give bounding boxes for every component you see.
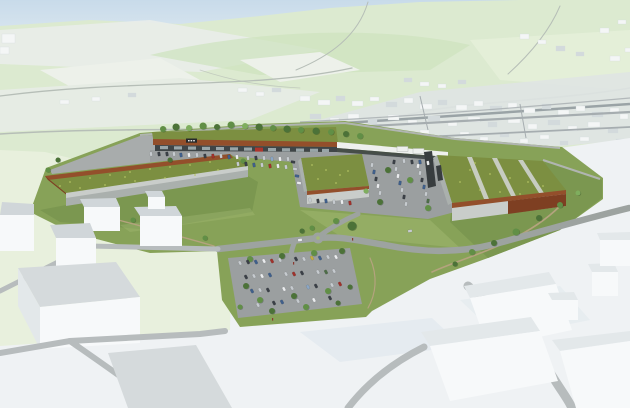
town-building-block	[458, 80, 466, 84]
car	[404, 202, 407, 207]
town-building-block	[488, 122, 497, 127]
cube-roof	[50, 223, 96, 238]
car	[424, 192, 427, 197]
town-building-block	[548, 120, 560, 125]
car	[291, 160, 296, 163]
car	[332, 200, 335, 205]
roof-vegetation-dot	[189, 164, 191, 166]
glass-unit	[268, 148, 276, 151]
glass-unit	[244, 148, 252, 151]
car	[297, 181, 302, 184]
roof-vegetation-dot	[104, 184, 106, 186]
town-building-block	[352, 101, 363, 106]
roof-vegetation-dot	[79, 187, 81, 189]
glass-unit	[202, 147, 210, 150]
town-building-block	[456, 105, 467, 110]
town-building-block	[128, 93, 136, 97]
car	[348, 201, 351, 206]
glass-unit	[282, 148, 290, 151]
pedestrian-figure	[272, 318, 273, 321]
car	[246, 156, 249, 161]
roof-vegetation-dot	[209, 161, 211, 163]
roof-vegetation-dot	[217, 169, 219, 171]
town-building-block	[620, 114, 628, 119]
town-building-block	[520, 34, 529, 39]
car	[165, 152, 168, 157]
roof-vegetation-dot	[149, 168, 151, 170]
town-building-block	[238, 88, 247, 92]
town-building-block	[576, 52, 584, 56]
car	[268, 164, 271, 169]
car	[227, 155, 230, 160]
glass-unit	[310, 149, 318, 152]
roof-vegetation-dot	[59, 185, 61, 187]
car	[408, 229, 413, 232]
pedestrian-figure	[293, 262, 294, 265]
town-building-block	[92, 97, 100, 101]
car	[316, 199, 319, 204]
glass-unit	[188, 147, 196, 150]
car	[211, 154, 214, 159]
town-building-block	[524, 108, 535, 113]
cube-roof	[145, 191, 165, 197]
car	[262, 156, 265, 161]
car	[398, 181, 401, 186]
cube-front	[148, 197, 165, 209]
town-building-block	[428, 116, 440, 121]
roof-vegetation-dot	[169, 166, 171, 168]
car	[374, 177, 377, 182]
car	[157, 152, 160, 157]
car	[420, 178, 423, 183]
box-front	[552, 300, 578, 320]
aerial-render	[0, 0, 630, 408]
car	[372, 170, 375, 175]
town-building-block	[438, 100, 447, 105]
sign-mark	[188, 140, 190, 141]
glass-unit	[216, 147, 224, 150]
town-building-block	[420, 82, 429, 86]
car	[426, 199, 429, 204]
town-building-block	[588, 122, 600, 127]
car	[149, 152, 152, 157]
town-building-block	[576, 106, 585, 111]
car	[308, 198, 311, 203]
roof-vegetation-dot	[489, 173, 491, 175]
car	[340, 200, 343, 205]
cart-shelter-2	[413, 149, 424, 154]
box-roof	[597, 232, 630, 240]
fascia-sign	[186, 139, 197, 143]
glass-unit	[174, 146, 182, 149]
town-building-block	[300, 96, 310, 101]
town-building-block	[370, 97, 379, 101]
cube-front	[140, 216, 182, 246]
car	[278, 157, 281, 162]
town-building-block	[2, 34, 15, 43]
town-building-block	[0, 47, 9, 54]
roof-vegetation-dot	[317, 178, 319, 180]
cube-roof	[80, 198, 120, 207]
car	[260, 163, 263, 168]
car	[378, 191, 381, 196]
town-building-block	[474, 101, 483, 106]
car	[195, 153, 198, 158]
roof-vegetation-dot	[527, 181, 529, 183]
town-building-block	[610, 56, 620, 61]
middle-hall-green-roof	[301, 154, 369, 191]
red-shop-unit	[255, 148, 263, 152]
roof-vegetation-dot	[519, 193, 521, 195]
town-building-block	[336, 96, 345, 101]
car	[402, 159, 405, 164]
car	[394, 167, 397, 172]
roof-vegetation-dot	[69, 181, 71, 183]
roundabout-island	[316, 236, 320, 240]
cube-front	[0, 215, 34, 251]
car	[187, 153, 190, 158]
town-building-block	[318, 100, 330, 105]
town-building-block	[310, 114, 321, 119]
car	[284, 165, 287, 170]
car	[252, 163, 255, 168]
car	[324, 199, 327, 204]
roof-vegetation-dot	[499, 191, 501, 193]
roof-vegetation-dot	[474, 162, 476, 164]
sign-mark	[193, 140, 195, 141]
roof-vegetation-dot	[325, 169, 327, 171]
car	[396, 174, 399, 179]
town-building-block	[404, 98, 413, 103]
roof-vegetation-dot	[89, 177, 91, 179]
cart-shelter-1	[397, 147, 408, 152]
car	[418, 160, 421, 165]
pedestrian-figure	[352, 238, 353, 241]
town-building-block	[528, 124, 537, 129]
car	[286, 157, 289, 162]
town-building-block	[540, 135, 549, 139]
car	[276, 164, 279, 169]
glass-unit	[160, 146, 168, 149]
town-building-block	[538, 40, 546, 44]
car	[179, 153, 182, 158]
roof-vegetation-dot	[164, 177, 166, 179]
car	[426, 161, 429, 166]
car	[392, 160, 395, 165]
town-building-block	[60, 100, 69, 104]
render-viewport	[0, 0, 630, 408]
roof-vegetation-dot	[194, 174, 196, 176]
roof-vegetation-dot	[109, 174, 111, 176]
car	[270, 157, 273, 162]
car	[298, 238, 302, 241]
box-front	[600, 240, 630, 266]
town-building-block	[558, 110, 569, 115]
roof-vegetation-dot	[339, 174, 341, 176]
town-building-block	[368, 119, 377, 124]
roof-vegetation-dot	[335, 182, 337, 184]
roof-vegetation-dot	[347, 170, 349, 172]
car	[203, 154, 206, 159]
car	[418, 171, 421, 176]
roof-vegetation-dot	[134, 180, 136, 182]
town-building-block	[556, 46, 565, 51]
roof-vegetation-dot	[469, 169, 471, 171]
car	[416, 164, 419, 169]
box-front	[592, 272, 618, 296]
car	[402, 195, 405, 200]
town-building-block	[560, 141, 568, 145]
roof-vegetation-dot	[124, 176, 126, 178]
car	[410, 160, 413, 165]
glass-unit	[296, 149, 304, 152]
middle-retail-hall	[298, 154, 369, 204]
car	[422, 185, 425, 190]
cube-roof	[0, 202, 34, 215]
roof-vegetation-dot	[129, 171, 131, 173]
town-building-block	[600, 28, 609, 33]
town-building-block	[625, 48, 630, 52]
car	[235, 155, 238, 160]
town-building-block	[618, 20, 626, 24]
town-building-block	[256, 92, 264, 96]
car	[376, 184, 379, 189]
car	[244, 162, 247, 167]
town-building-block	[272, 88, 281, 92]
town-building-block	[386, 102, 397, 107]
roof-vegetation-dot	[509, 177, 511, 179]
car	[293, 167, 298, 170]
roof-vegetation-dot	[479, 189, 481, 191]
town-building-block	[520, 139, 528, 143]
car	[254, 156, 257, 161]
town-building-block	[438, 84, 446, 88]
town-building-block	[404, 78, 412, 82]
roof-vegetation-dot	[311, 164, 313, 166]
sign-mark	[191, 140, 193, 141]
car	[370, 163, 373, 168]
box-roof	[548, 292, 578, 300]
town-building-block	[580, 137, 589, 141]
car	[295, 174, 300, 177]
glass-unit	[230, 147, 238, 150]
car	[219, 154, 222, 159]
car	[236, 162, 239, 167]
car	[172, 152, 175, 157]
roof-vegetation-dot	[542, 185, 544, 187]
roof-vegetation-dot	[459, 181, 461, 183]
car	[400, 188, 403, 193]
glass-unit	[322, 149, 329, 152]
